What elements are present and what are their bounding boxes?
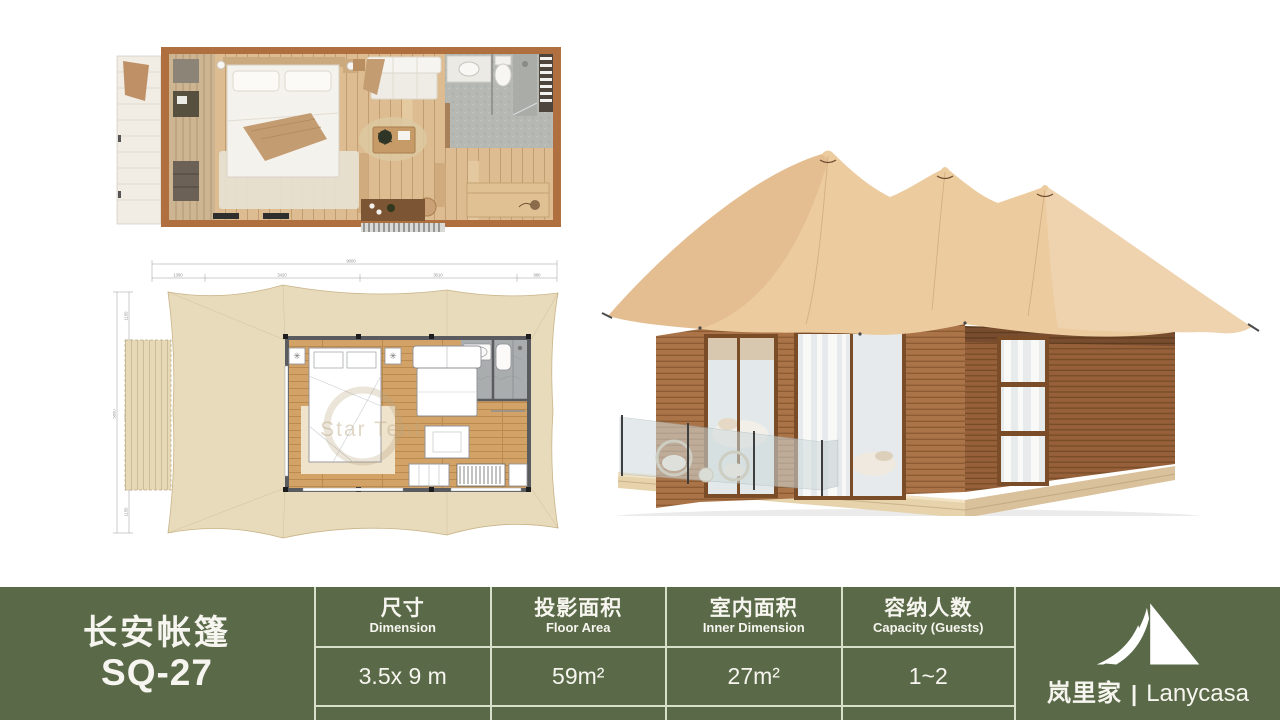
bench [467, 183, 549, 217]
plan-sofa [413, 346, 481, 416]
brand-name-en: Lanycasa [1146, 680, 1249, 708]
plan-deck [125, 340, 171, 490]
svg-text:9000: 9000 [346, 259, 356, 264]
brand-logo: 岚里家 | Lanycasa [1016, 587, 1280, 720]
louver-window [539, 54, 553, 112]
spec-header-zh: 尺寸 [381, 597, 425, 621]
toilet [495, 64, 511, 86]
spec-value: 1~2 [843, 648, 1015, 707]
spec-value: 3.5x 9 m [316, 648, 490, 707]
spec-header: 投影面积 Floor Area [492, 587, 666, 648]
spec-table: 尺寸 Dimension 3.5x 9 m 投影面积 Floor Area 59… [314, 587, 1016, 720]
tent-canopy [602, 151, 1259, 337]
svg-text:✳: ✳ [293, 351, 301, 361]
product-model: SQ-27 [101, 652, 213, 693]
plan-toilet [496, 344, 511, 370]
spec-col-capacity: 容纳人数 Capacity (Guests) 1~2 [841, 587, 1017, 720]
spec-header-en: Inner Dimension [703, 621, 805, 636]
spec-header-en: Capacity (Guests) [873, 621, 984, 636]
spec-header-zh: 投影面积 [534, 597, 622, 621]
tent-icon [1089, 599, 1207, 671]
brand-name-zh: 岚里家 [1047, 673, 1122, 708]
bed-area [217, 57, 359, 209]
tent-3d-render [598, 128, 1280, 516]
spec-header-zh: 容纳人数 [884, 597, 972, 621]
plan-room: ✳ ✳ [283, 334, 531, 492]
svg-text:3010: 3010 [433, 273, 443, 278]
spec-header: 尺寸 Dimension [316, 587, 490, 648]
spec-col-dimension: 尺寸 Dimension 3.5x 9 m [314, 587, 490, 720]
plan-shower-head [518, 346, 522, 350]
outdoor-deck [117, 56, 161, 224]
spec-band: 长安帐篷 SQ-27 尺寸 Dimension 3.5x 9 m 投影面积 Fl… [0, 587, 1280, 720]
side-window-stack [997, 336, 1049, 486]
svg-text:Star Tent: Star Tent [320, 418, 422, 441]
cabin-end-wall [656, 329, 700, 508]
brand-text: 岚里家 | Lanycasa [1047, 673, 1249, 708]
floorplan-render [115, 43, 575, 237]
cabin-side-wall [965, 326, 1175, 492]
spec-col-floor-area: 投影面积 Floor Area 59m² [490, 587, 666, 720]
brand-separator: | [1131, 681, 1137, 707]
svg-text:980: 980 [534, 273, 542, 278]
svg-text:1150: 1150 [124, 507, 129, 517]
svg-text:1150: 1150 [124, 311, 129, 321]
svg-text:5800: 5800 [113, 409, 117, 419]
closet [169, 54, 215, 220]
svg-text:✳: ✳ [389, 351, 397, 361]
product-name-zh: 长安帐篷 [83, 614, 231, 652]
plan-coffee-table [425, 426, 469, 458]
spec-header-en: Dimension [370, 621, 436, 636]
product-slide: 9000 1390 3420 3010 980 5800 1150 3500 1… [0, 0, 1280, 720]
deck-cloth [123, 61, 149, 101]
spec-value: 27m² [667, 648, 841, 707]
product-title: 长安帐篷 SQ-27 [0, 587, 314, 720]
svg-text:1390: 1390 [173, 273, 183, 278]
sink [459, 62, 479, 76]
spec-col-inner-dimension: 室内面积 Inner Dimension 27m² [665, 587, 841, 720]
spec-header-en: Floor Area [546, 621, 611, 636]
spec-header: 容纳人数 Capacity (Guests) [843, 587, 1015, 648]
bathroom [445, 54, 553, 148]
spec-value: 59m² [492, 648, 666, 707]
spec-header-zh: 室内面积 [710, 597, 798, 621]
svg-text:3420: 3420 [277, 273, 287, 278]
floorplan-drawing: 9000 1390 3420 3010 980 5800 1150 3500 1… [113, 256, 563, 556]
spec-header: 室内面积 Inner Dimension [667, 587, 841, 648]
